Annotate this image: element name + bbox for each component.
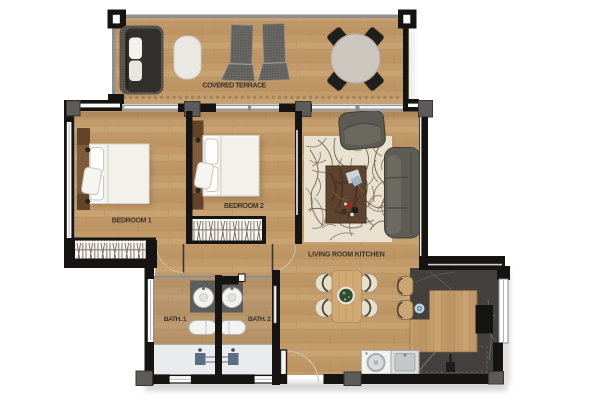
svg-text:BEDROOM 1: BEDROOM 1 [112, 218, 152, 225]
svg-text:BATH. 1: BATH. 1 [164, 316, 187, 323]
svg-text:BATH. 2: BATH. 2 [248, 316, 271, 323]
svg-text:BEDROOM 2: BEDROOM 2 [224, 203, 264, 210]
svg-text:LIVING ROOM KITCHEN: LIVING ROOM KITCHEN [308, 252, 385, 259]
svg-text:COVERED TERRACE: COVERED TERRACE [203, 83, 267, 90]
